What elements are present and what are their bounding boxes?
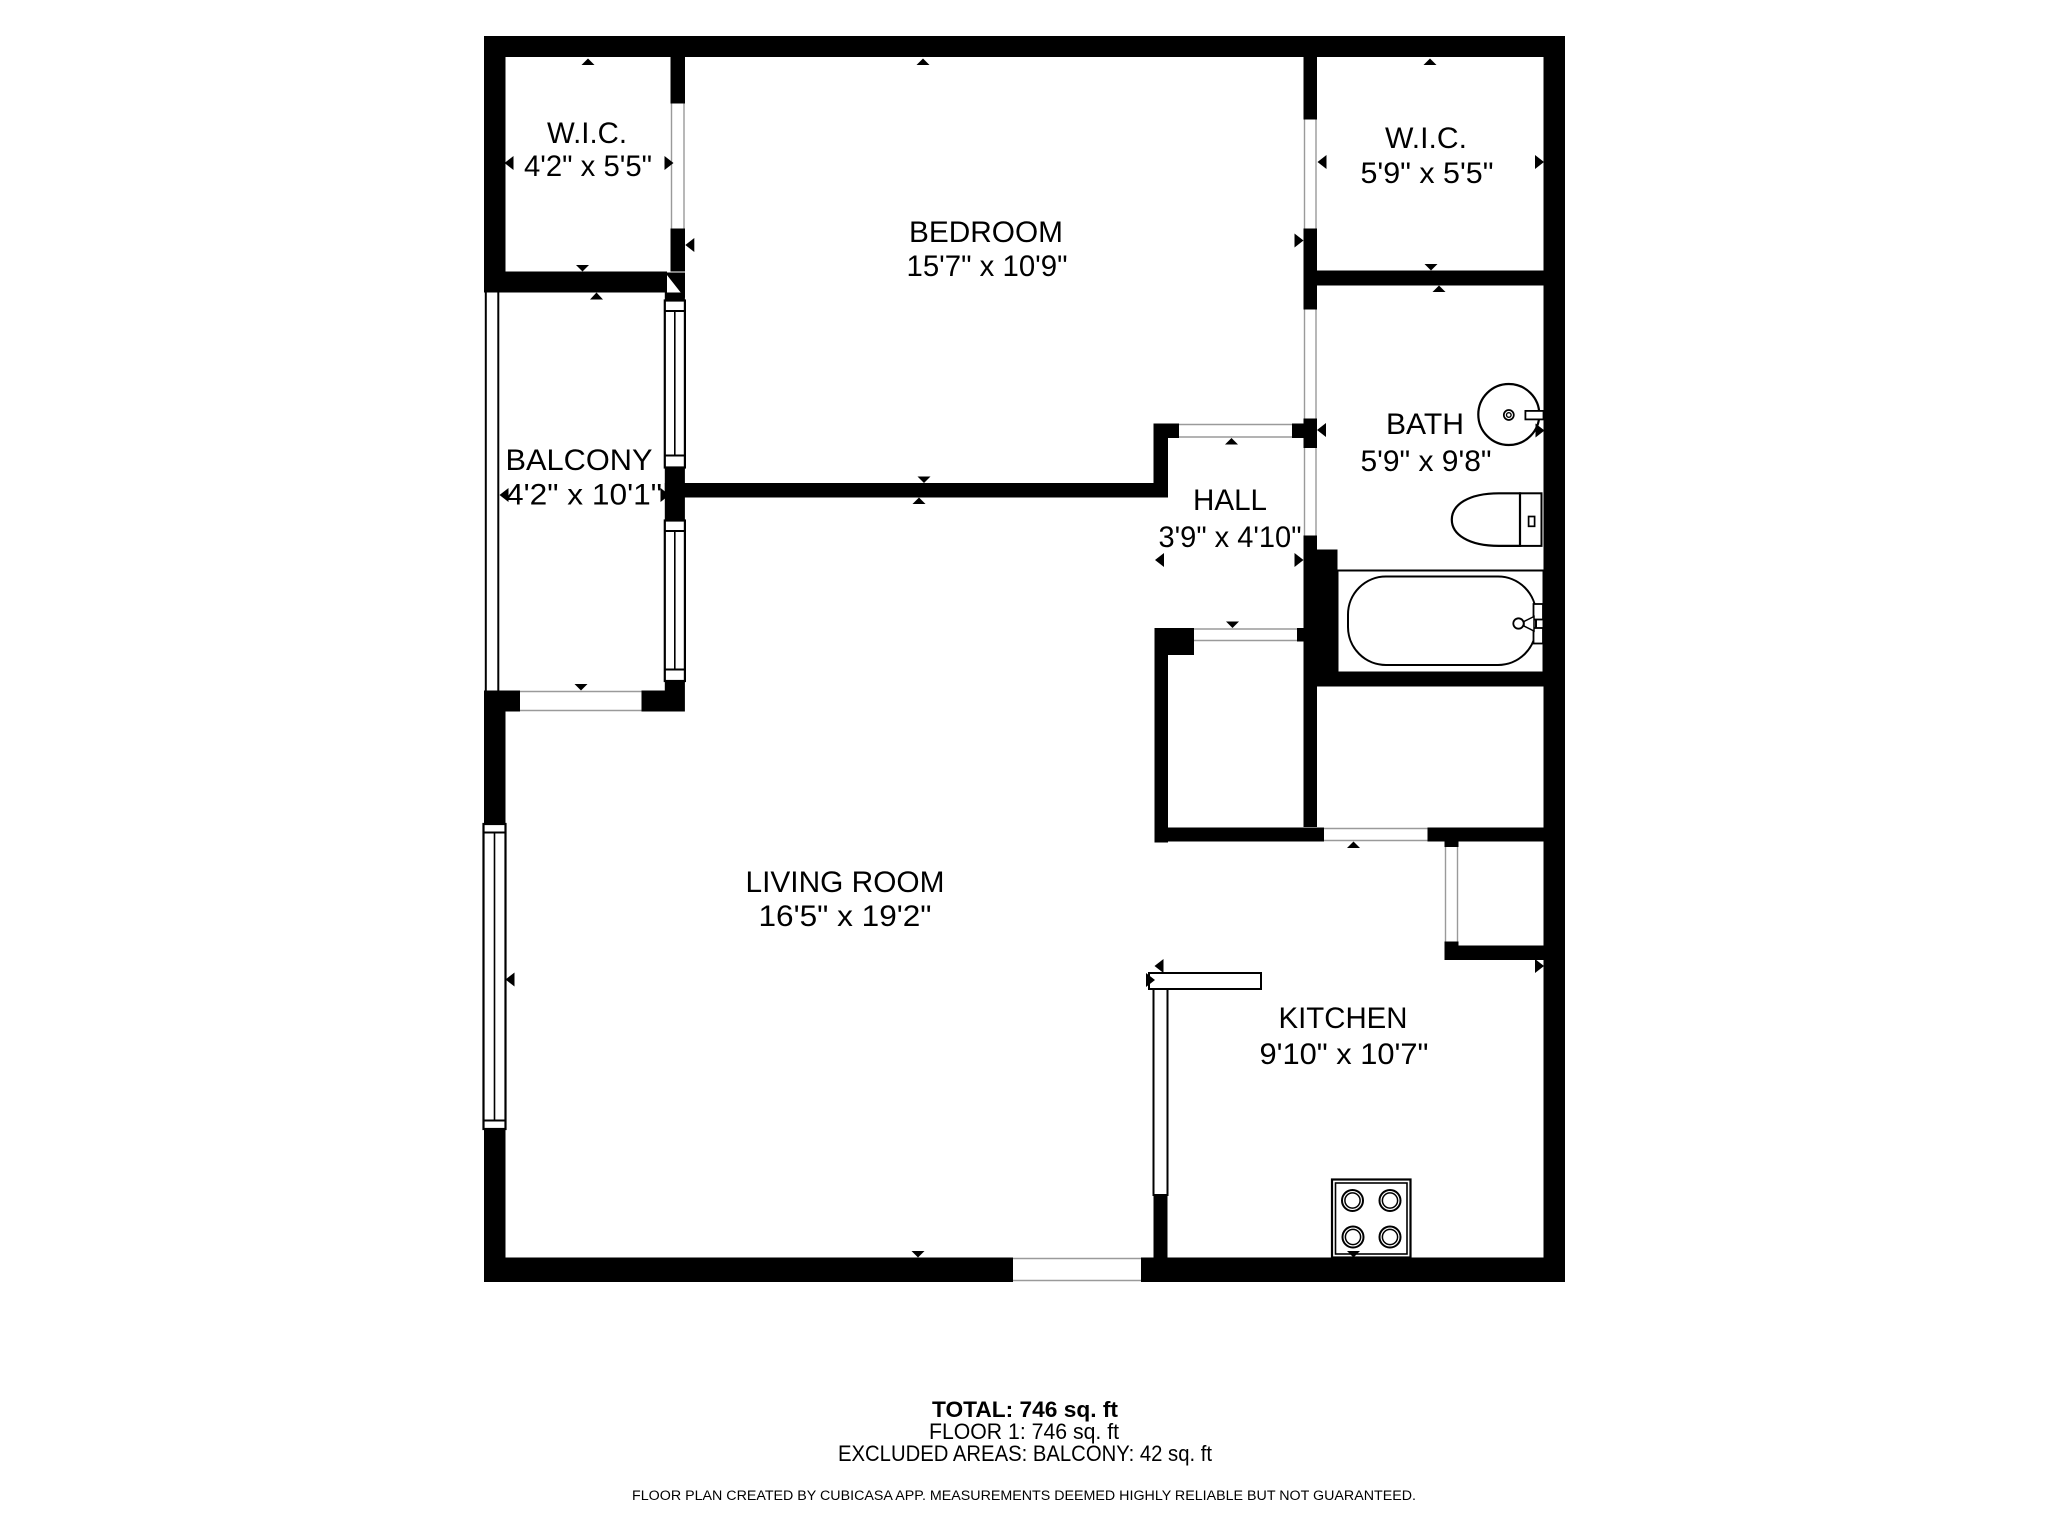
svg-text:5'9" x 9'8": 5'9" x 9'8" [1361, 445, 1492, 478]
svg-text:BALCONY: BALCONY [506, 444, 653, 477]
svg-text:FLOOR PLAN CREATED BY CUBICASA: FLOOR PLAN CREATED BY CUBICASA APP. MEAS… [632, 1488, 1416, 1503]
svg-text:KITCHEN: KITCHEN [1279, 1002, 1408, 1035]
svg-text:3'9" x 4'10": 3'9" x 4'10" [1159, 521, 1302, 554]
svg-text:EXCLUDED AREAS: BALCONY: 42 sq: EXCLUDED AREAS: BALCONY: 42 sq. ft [838, 1441, 1213, 1466]
svg-text:LIVING ROOM: LIVING ROOM [746, 866, 945, 899]
svg-text:W.I.C.: W.I.C. [547, 117, 627, 150]
svg-text:16'5" x 19'2": 16'5" x 19'2" [759, 900, 932, 933]
svg-text:BATH: BATH [1386, 408, 1464, 441]
svg-text:4'2" x 10'1": 4'2" x 10'1" [506, 479, 662, 512]
svg-text:BEDROOM: BEDROOM [909, 216, 1063, 249]
svg-text:5'9" x 5'5": 5'9" x 5'5" [1361, 157, 1494, 190]
svg-text:9'10" x 10'7": 9'10" x 10'7" [1260, 1038, 1429, 1071]
svg-text:HALL: HALL [1193, 484, 1267, 517]
svg-text:W.I.C.: W.I.C. [1385, 122, 1467, 155]
svg-text:4'2" x 5'5": 4'2" x 5'5" [524, 150, 652, 183]
svg-text:15'7" x 10'9": 15'7" x 10'9" [907, 250, 1068, 283]
